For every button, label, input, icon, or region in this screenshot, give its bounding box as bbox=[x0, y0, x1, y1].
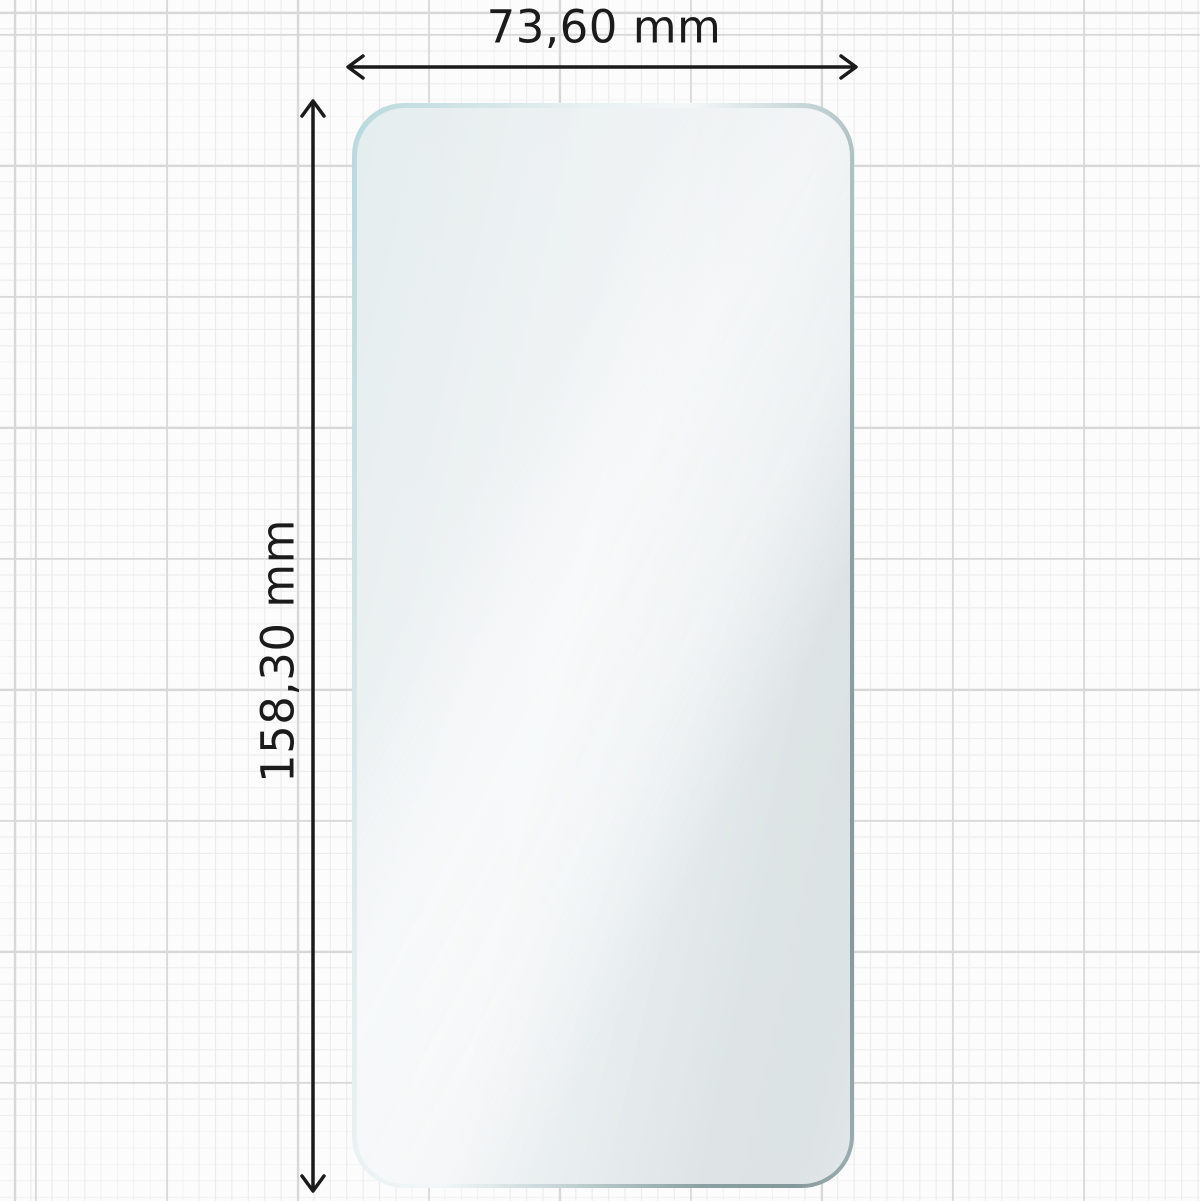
screen-protector-outline bbox=[352, 103, 854, 1188]
width-dimension-label: 73,60 mm bbox=[487, 1, 722, 54]
height-dimension-label: 158,30 mm bbox=[252, 519, 305, 783]
screen-protector-glass bbox=[357, 108, 850, 1184]
